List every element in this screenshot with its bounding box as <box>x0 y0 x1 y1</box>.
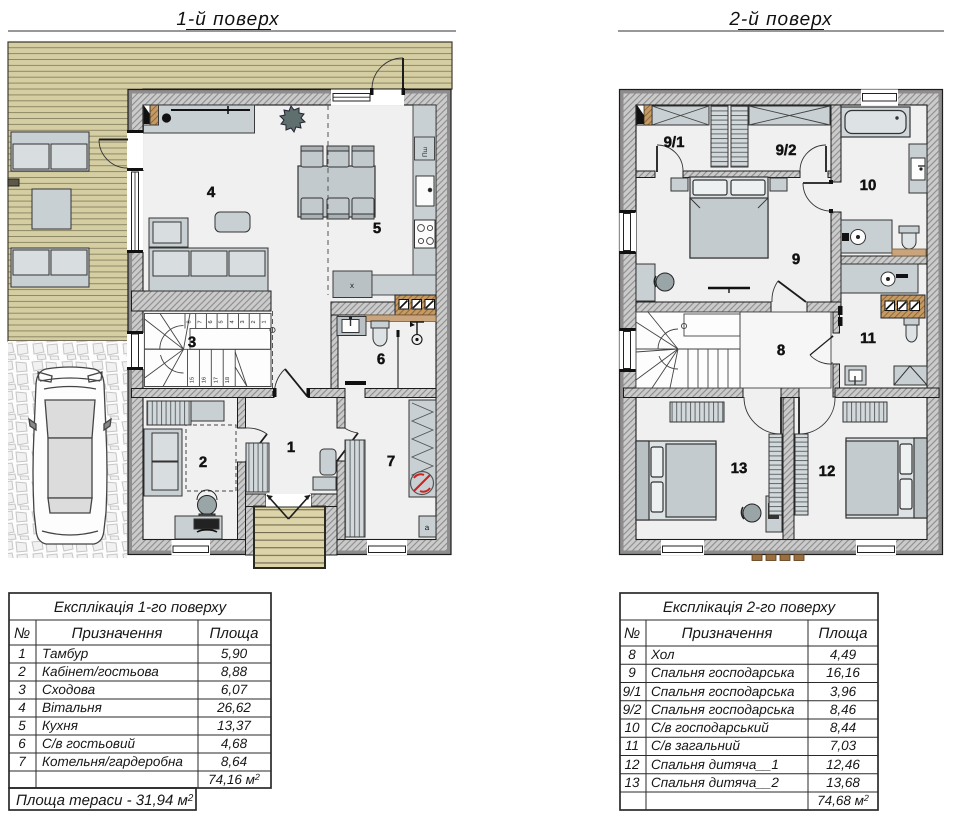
svg-text:Спальня дитяча__1: Спальня дитяча__1 <box>651 757 779 772</box>
svg-text:Призначення: Призначення <box>682 625 773 642</box>
svg-text:8: 8 <box>628 647 636 662</box>
svg-text:8,44: 8,44 <box>830 720 856 735</box>
svg-text:8,88: 8,88 <box>221 664 248 679</box>
svg-text:4,49: 4,49 <box>830 647 857 662</box>
svg-text:3: 3 <box>240 320 246 323</box>
svg-text:12,46: 12,46 <box>826 757 860 772</box>
svg-text:х: х <box>350 281 354 290</box>
svg-text:12: 12 <box>624 757 640 772</box>
svg-text:17: 17 <box>213 377 219 383</box>
svg-text:С/в господарський: С/в господарський <box>651 720 769 735</box>
svg-text:12: 12 <box>819 463 836 480</box>
svg-text:8: 8 <box>187 320 193 323</box>
svg-text:a: a <box>425 523 430 532</box>
svg-text:8,64: 8,64 <box>221 754 247 769</box>
svg-text:9/2: 9/2 <box>623 702 642 717</box>
svg-text:1-й поверх: 1-й поверх <box>176 9 280 30</box>
svg-text:8,46: 8,46 <box>830 702 857 717</box>
svg-text:26,62: 26,62 <box>216 700 251 715</box>
svg-text:2-й поверх: 2-й поверх <box>728 9 833 30</box>
svg-text:9/2: 9/2 <box>776 142 797 159</box>
svg-text:3: 3 <box>18 682 26 697</box>
svg-text:7: 7 <box>387 453 395 470</box>
svg-text:5: 5 <box>373 220 381 237</box>
svg-text:16: 16 <box>201 377 207 383</box>
svg-text:Хол: Хол <box>650 647 675 662</box>
svg-text:Площа: Площа <box>819 625 868 642</box>
svg-text:5: 5 <box>18 718 26 733</box>
svg-text:7,03: 7,03 <box>830 738 857 753</box>
svg-text:6: 6 <box>377 351 385 368</box>
svg-text:Спальня господарська: Спальня господарська <box>651 665 795 680</box>
svg-text:13: 13 <box>624 775 640 790</box>
svg-text:4: 4 <box>207 184 216 201</box>
svg-text:6,07: 6,07 <box>221 682 248 697</box>
svg-text:4,68: 4,68 <box>221 736 248 751</box>
svg-text:6: 6 <box>18 736 26 751</box>
svg-text:9: 9 <box>792 251 800 268</box>
svg-text:№: № <box>14 625 30 642</box>
svg-text:13: 13 <box>731 460 748 477</box>
svg-text:13,37: 13,37 <box>217 718 251 733</box>
svg-text:9/1: 9/1 <box>664 134 685 151</box>
svg-text:9: 9 <box>628 665 636 680</box>
svg-text:6: 6 <box>208 320 214 323</box>
svg-text:№: № <box>624 625 640 642</box>
svg-text:11: 11 <box>860 330 876 347</box>
svg-text:Сходова: Сходова <box>42 682 96 697</box>
svg-text:5: 5 <box>219 320 225 323</box>
svg-text:11: 11 <box>625 738 639 753</box>
svg-text:3: 3 <box>188 334 196 351</box>
svg-text:Експлікація 1-го поверху: Експлікація 1-го поверху <box>54 599 228 616</box>
svg-text:16,16: 16,16 <box>826 665 860 680</box>
svg-text:7: 7 <box>18 754 26 769</box>
svg-text:18: 18 <box>225 377 231 383</box>
svg-text:С/в гостьовий: С/в гостьовий <box>42 736 135 751</box>
svg-text:Вітальня: Вітальня <box>42 700 102 715</box>
svg-text:Котельня/гардеробна: Котельня/гардеробна <box>42 754 183 769</box>
svg-text:Кухня: Кухня <box>42 718 78 733</box>
svg-text:Кабінет/гостьова: Кабінет/гостьова <box>42 664 159 679</box>
svg-text:1: 1 <box>262 320 268 323</box>
svg-text:Спальня дитяча__2: Спальня дитяча__2 <box>651 775 779 790</box>
svg-text:1: 1 <box>287 439 295 456</box>
svg-text:Спальня господарська: Спальня господарська <box>651 684 795 699</box>
svg-text:5,90: 5,90 <box>221 646 248 661</box>
svg-text:74,16 м2: 74,16 м2 <box>208 772 260 787</box>
svg-text:4: 4 <box>18 700 26 715</box>
svg-text:9/1: 9/1 <box>623 684 642 699</box>
svg-text:7: 7 <box>197 320 203 323</box>
svg-text:Призначення: Призначення <box>72 625 163 642</box>
svg-text:10: 10 <box>624 720 640 735</box>
svg-text:1: 1 <box>18 646 26 661</box>
svg-text:Площа тераси - 31,94 м2: Площа тераси - 31,94 м2 <box>16 792 194 809</box>
svg-text:8: 8 <box>777 342 785 359</box>
svg-text:Тамбур: Тамбур <box>42 646 89 661</box>
svg-text:10: 10 <box>860 177 877 194</box>
svg-text:С/в загальний: С/в загальний <box>651 738 740 753</box>
svg-text:15: 15 <box>190 377 196 383</box>
svg-text:13,68: 13,68 <box>826 775 860 790</box>
svg-text:2: 2 <box>17 664 26 679</box>
svg-text:Площа: Площа <box>210 625 259 642</box>
svg-text:2: 2 <box>199 454 207 471</box>
svg-text:3,96: 3,96 <box>830 684 857 699</box>
svg-text:Експлікація 2-го поверху: Експлікація 2-го поверху <box>663 599 837 616</box>
svg-text:Пш: Пш <box>422 147 429 157</box>
svg-text:2: 2 <box>251 320 257 323</box>
svg-text:4: 4 <box>229 320 235 323</box>
svg-text:74,68 м2: 74,68 м2 <box>817 793 869 808</box>
svg-text:Спальня господарська: Спальня господарська <box>651 702 795 717</box>
